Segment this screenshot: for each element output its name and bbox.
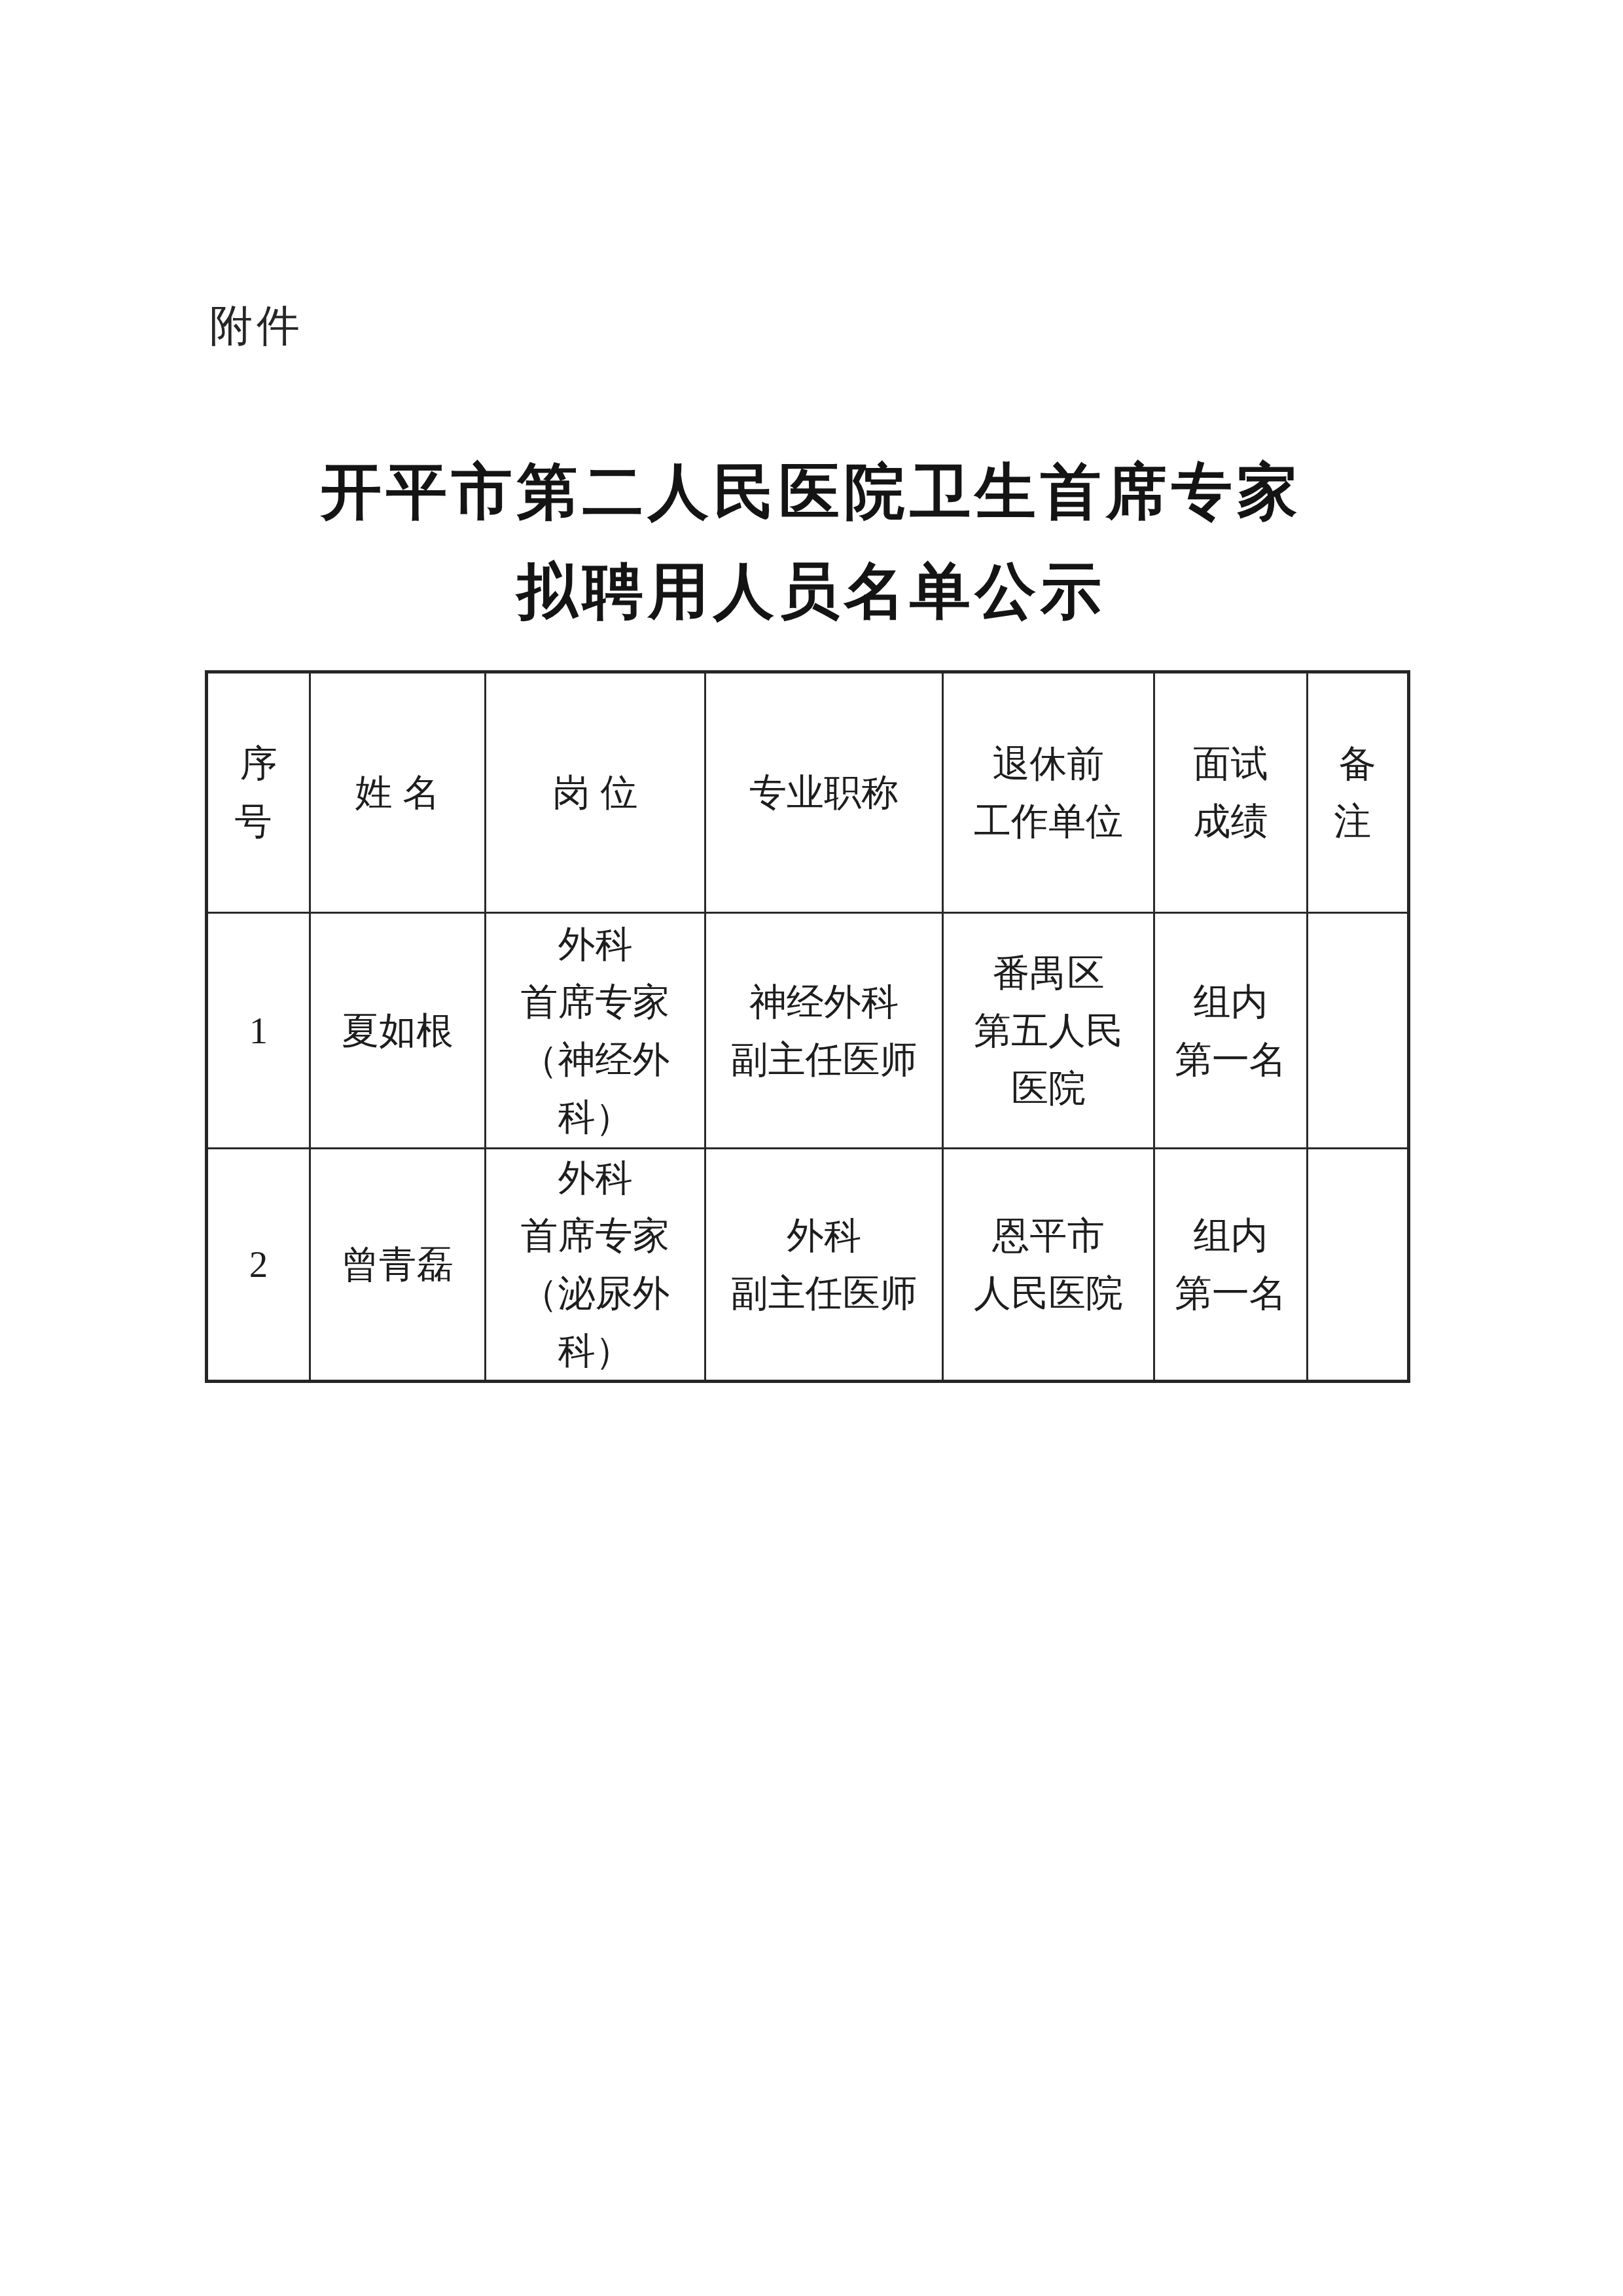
document-title-line2: 拟聘用人员名单公示 bbox=[0, 556, 1623, 628]
cell-position: 外科 首席专家 （泌尿外科） bbox=[486, 1149, 705, 1382]
header-cell-interview-score: 面试 成绩 bbox=[1154, 672, 1308, 913]
cell-professional-title: 外科 副主任医师 bbox=[705, 1149, 943, 1382]
header-cell-name: 姓名 bbox=[310, 672, 486, 913]
cell-position: 外科 首席专家 （神经外科） bbox=[486, 913, 705, 1149]
roster-table: 序号 姓名 岗位 专业职称 退休前 工作单位 面试 成绩 备注 1 夏如根 外科… bbox=[205, 670, 1410, 1383]
header-cell-prev-employer: 退休前 工作单位 bbox=[943, 672, 1154, 913]
roster-table-container: 序号 姓名 岗位 专业职称 退休前 工作单位 面试 成绩 备注 1 夏如根 外科… bbox=[205, 670, 1410, 1383]
cell-prev-employer: 番禺区 第五人民 医院 bbox=[943, 913, 1154, 1149]
scanned-document-page: 附件 开平市第二人民医院卫生首席专家 拟聘用人员名单公示 序号 姓名 岗位 专业… bbox=[0, 0, 1623, 2296]
header-row: 序号 姓名 岗位 专业职称 退休前 工作单位 面试 成绩 备注 bbox=[207, 672, 1409, 913]
cell-no: 2 bbox=[207, 1149, 310, 1382]
cell-interview-score: 组内 第一名 bbox=[1154, 913, 1308, 1149]
cell-remarks bbox=[1308, 1149, 1409, 1382]
cell-interview-score: 组内 第一名 bbox=[1154, 1149, 1308, 1382]
cell-name: 曾青磊 bbox=[310, 1149, 486, 1382]
table-row: 2 曾青磊 外科 首席专家 （泌尿外科） 外科 副主任医师 恩平市 人民医院 组… bbox=[207, 1149, 1409, 1382]
attachment-label: 附件 bbox=[209, 301, 304, 350]
cell-name: 夏如根 bbox=[310, 913, 486, 1149]
cell-prev-employer: 恩平市 人民医院 bbox=[943, 1149, 1154, 1382]
document-title-line1: 开平市第二人民医院卫生首席专家 bbox=[0, 456, 1623, 528]
cell-no: 1 bbox=[207, 913, 310, 1149]
header-cell-remarks: 备注 bbox=[1308, 672, 1409, 913]
header-cell-position: 岗位 bbox=[486, 672, 705, 913]
header-cell-professional-title: 专业职称 bbox=[705, 672, 943, 913]
cell-professional-title: 神经外科 副主任医师 bbox=[705, 913, 943, 1149]
table-row: 1 夏如根 外科 首席专家 （神经外科） 神经外科 副主任医师 番禺区 第五人民… bbox=[207, 913, 1409, 1149]
cell-remarks bbox=[1308, 913, 1409, 1149]
header-cell-no: 序号 bbox=[207, 672, 310, 913]
